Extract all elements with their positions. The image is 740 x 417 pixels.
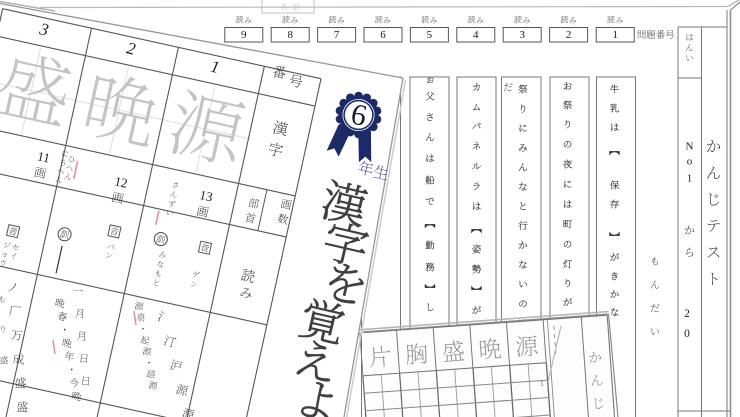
svg-text:8: 8 [287,29,293,41]
svg-text:4: 4 [473,29,479,41]
svg-text:1: 1 [612,29,618,41]
svg-text:N: N [686,141,694,153]
svg-text:1: 1 [687,173,693,185]
svg-text:2: 2 [566,29,572,41]
svg-text:0: 0 [684,328,690,340]
svg-text:5: 5 [427,29,433,41]
svg-text:o: o [687,156,693,168]
svg-text:1: 1 [540,379,545,388]
svg-text:2: 2 [684,308,690,320]
svg-text:9: 9 [241,29,247,41]
svg-text:6: 6 [380,29,386,41]
svg-text:3: 3 [519,29,525,41]
svg-text:7: 7 [334,29,340,41]
